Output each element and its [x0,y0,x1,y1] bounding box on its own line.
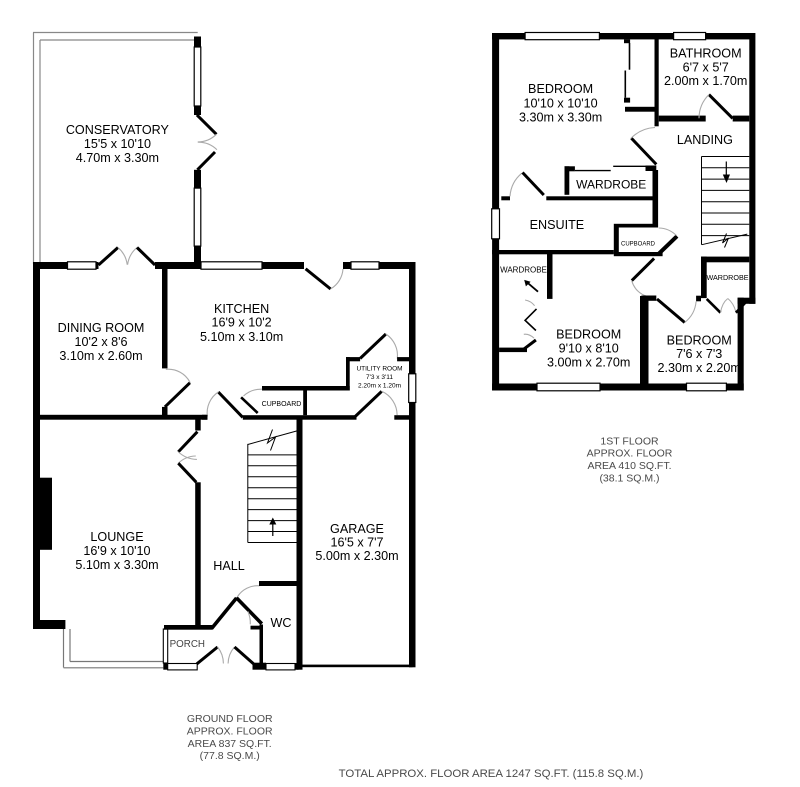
svg-text:WC: WC [271,616,292,630]
svg-text:10'2 x 8'6: 10'2 x 8'6 [74,335,127,349]
svg-text:5.10m x 3.10m: 5.10m x 3.10m [200,330,283,344]
svg-text:LOUNGE: LOUNGE [90,530,143,544]
svg-text:3.30m x 3.30m: 3.30m x 3.30m [519,111,602,125]
svg-text:6'7 x 5'7: 6'7 x 5'7 [683,61,729,75]
svg-text:(77.8 SQ.M.): (77.8 SQ.M.) [200,750,260,762]
svg-text:ENSUITE: ENSUITE [530,218,585,232]
svg-text:CUPBOARD: CUPBOARD [621,242,656,248]
svg-text:10'10 x 10'10: 10'10 x 10'10 [524,97,598,111]
svg-text:7'3 x 3'11: 7'3 x 3'11 [366,374,393,381]
svg-text:16'9 x 10'2: 16'9 x 10'2 [212,316,272,330]
svg-text:APPROX. FLOOR: APPROX. FLOOR [187,725,273,737]
svg-text:CONSERVATORY: CONSERVATORY [66,123,170,137]
svg-text:16'5 x 7'7: 16'5 x 7'7 [330,536,383,550]
svg-text:GROUND FLOOR: GROUND FLOOR [187,713,273,725]
svg-text:3.10m x 2.60m: 3.10m x 2.60m [59,349,142,363]
svg-text:3.00m x 2.70m: 3.00m x 2.70m [547,356,630,370]
svg-text:16'9 x 10'10: 16'9 x 10'10 [83,544,150,558]
svg-text:2.30m x 2.20m: 2.30m x 2.20m [658,361,741,375]
svg-text:CUPBOARD: CUPBOARD [262,401,302,408]
svg-text:WARDROBE: WARDROBE [500,266,547,275]
svg-text:5.00m x 2.30m: 5.00m x 2.30m [315,549,398,563]
svg-text:4.70m x 3.30m: 4.70m x 3.30m [76,151,159,165]
svg-text:KITCHEN: KITCHEN [214,302,269,316]
svg-text:BEDROOM: BEDROOM [528,82,593,96]
svg-text:15'5 x 10'10: 15'5 x 10'10 [84,137,151,151]
svg-text:BEDROOM: BEDROOM [556,328,621,342]
svg-text:BATHROOM: BATHROOM [670,47,742,61]
svg-text:GARAGE: GARAGE [330,522,384,536]
svg-text:WARDROBE: WARDROBE [706,273,748,282]
svg-text:7'6 x 7'3: 7'6 x 7'3 [676,347,722,361]
svg-text:1ST FLOOR: 1ST FLOOR [600,435,659,447]
svg-text:UTILITY ROOM: UTILITY ROOM [356,366,402,373]
svg-text:APPROX. FLOOR: APPROX. FLOOR [587,448,673,460]
svg-text:PORCH: PORCH [170,639,205,650]
svg-text:(38.1 SQ.M.): (38.1 SQ.M.) [599,473,659,485]
svg-text:AREA 410 SQ.FT.: AREA 410 SQ.FT. [587,460,671,472]
svg-text:WARDROBE: WARDROBE [576,177,646,191]
svg-text:HALL: HALL [213,559,245,573]
svg-text:BEDROOM: BEDROOM [667,334,732,348]
svg-text:TOTAL APPROX. FLOOR AREA 1247: TOTAL APPROX. FLOOR AREA 1247 SQ.FT. (11… [339,768,644,780]
svg-text:2.20m x 1.20m: 2.20m x 1.20m [358,383,401,390]
svg-text:2.00m x 1.70m: 2.00m x 1.70m [664,74,747,88]
svg-text:AREA 837 SQ.FT.: AREA 837 SQ.FT. [188,738,272,750]
svg-text:LANDING: LANDING [677,133,733,147]
svg-text:DINING ROOM: DINING ROOM [58,321,145,335]
svg-text:5.10m x 3.30m: 5.10m x 3.30m [75,558,158,572]
svg-text:9'10 x 8'10: 9'10 x 8'10 [559,342,619,356]
